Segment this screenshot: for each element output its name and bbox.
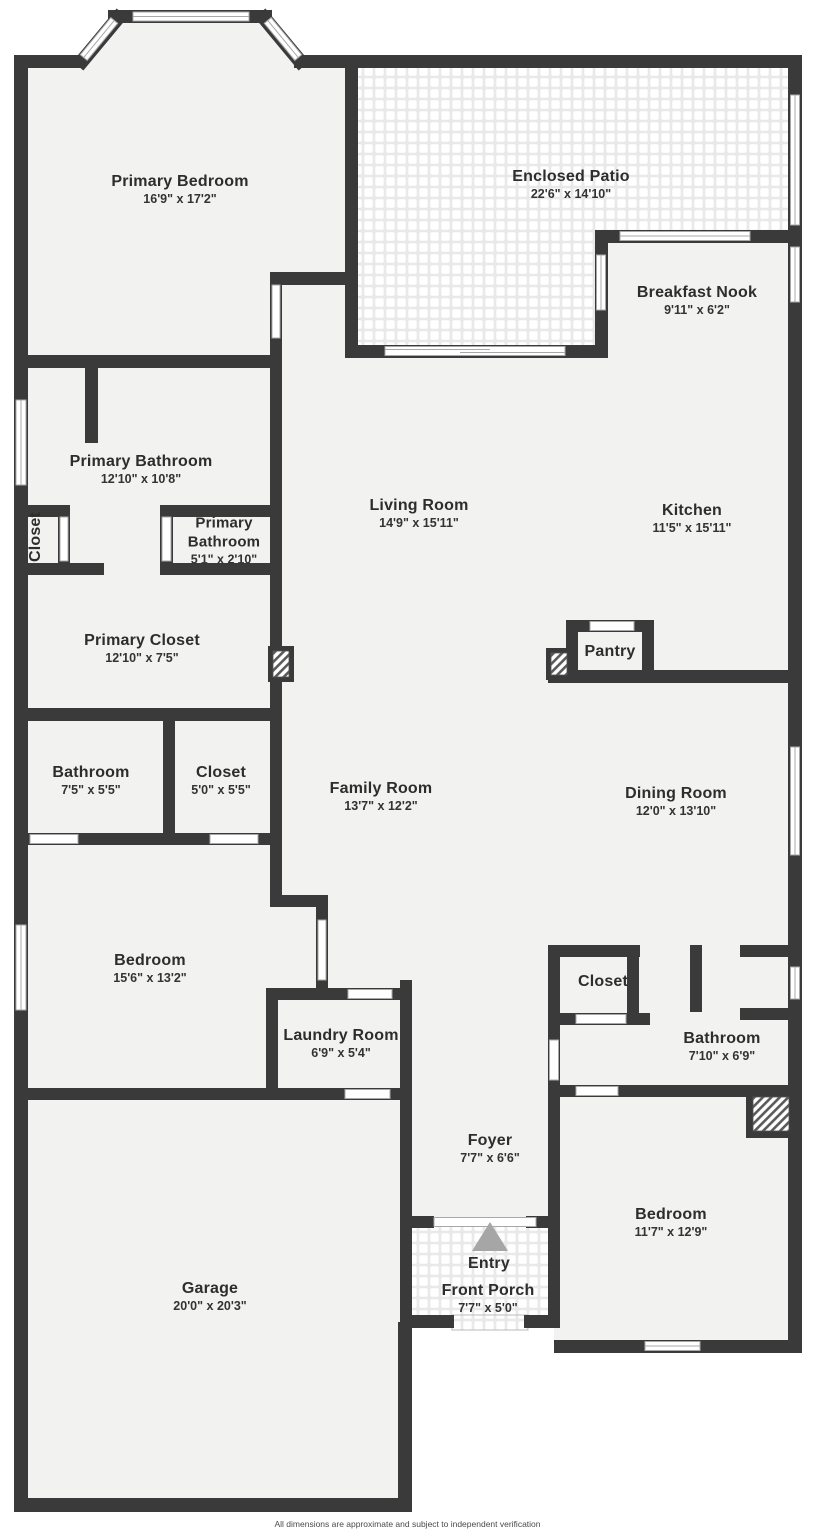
floor-plan: Primary Bedroom16'9" x 17'2"Enclosed Pat… xyxy=(0,0,815,1536)
disclaimer-text: All dimensions are approximate and subje… xyxy=(0,1519,815,1529)
floor-plan-drawing xyxy=(0,0,815,1536)
